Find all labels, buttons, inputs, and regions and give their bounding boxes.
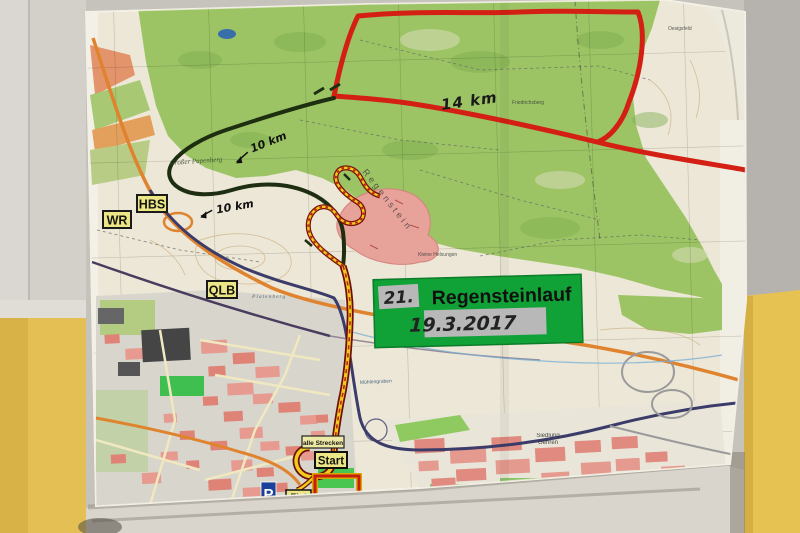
sign-qlb: QLB — [207, 281, 237, 298]
large-building — [141, 328, 191, 362]
race-date: 19.3.2017 — [409, 312, 518, 337]
label-siedlung: Siedlung — [536, 433, 559, 439]
label-friedrichsberg: Friedrichsberg — [512, 100, 544, 106]
sign-wr: WR — [103, 211, 131, 228]
svg-text:alle Strecken: alle Strecken — [303, 440, 343, 447]
svg-text:QLB: QLB — [209, 284, 235, 298]
pond — [218, 29, 236, 39]
label-oesigsfeld: Oesigsfeld — [668, 26, 692, 32]
sign-all-tracks: alle Strecken — [302, 436, 344, 448]
race-map-photo: Großer Papenberg Regenstein Friedrichsbe… — [0, 0, 800, 533]
svg-text:Start: Start — [318, 456, 344, 468]
sign-start: Start — [315, 452, 347, 468]
race-name: Regensteinlauf — [431, 284, 572, 310]
race-number: 21. — [383, 287, 414, 309]
photo-of-race-course-map: Großer Papenberg Regenstein Friedrichsbe… — [0, 0, 800, 533]
svg-text:HBS: HBS — [139, 198, 165, 212]
label-platenberg: Platenberg — [251, 294, 286, 300]
label-gehren: Gehren — [538, 440, 558, 446]
svg-text:WR: WR — [107, 214, 128, 228]
label-kleine-helsungen: Kleine Helsungen — [418, 252, 457, 258]
sign-hbs: HBS — [137, 195, 167, 212]
event-sign: 21. Regensteinlauf 19.3.2017 — [373, 274, 583, 347]
sports-field — [160, 376, 204, 396]
